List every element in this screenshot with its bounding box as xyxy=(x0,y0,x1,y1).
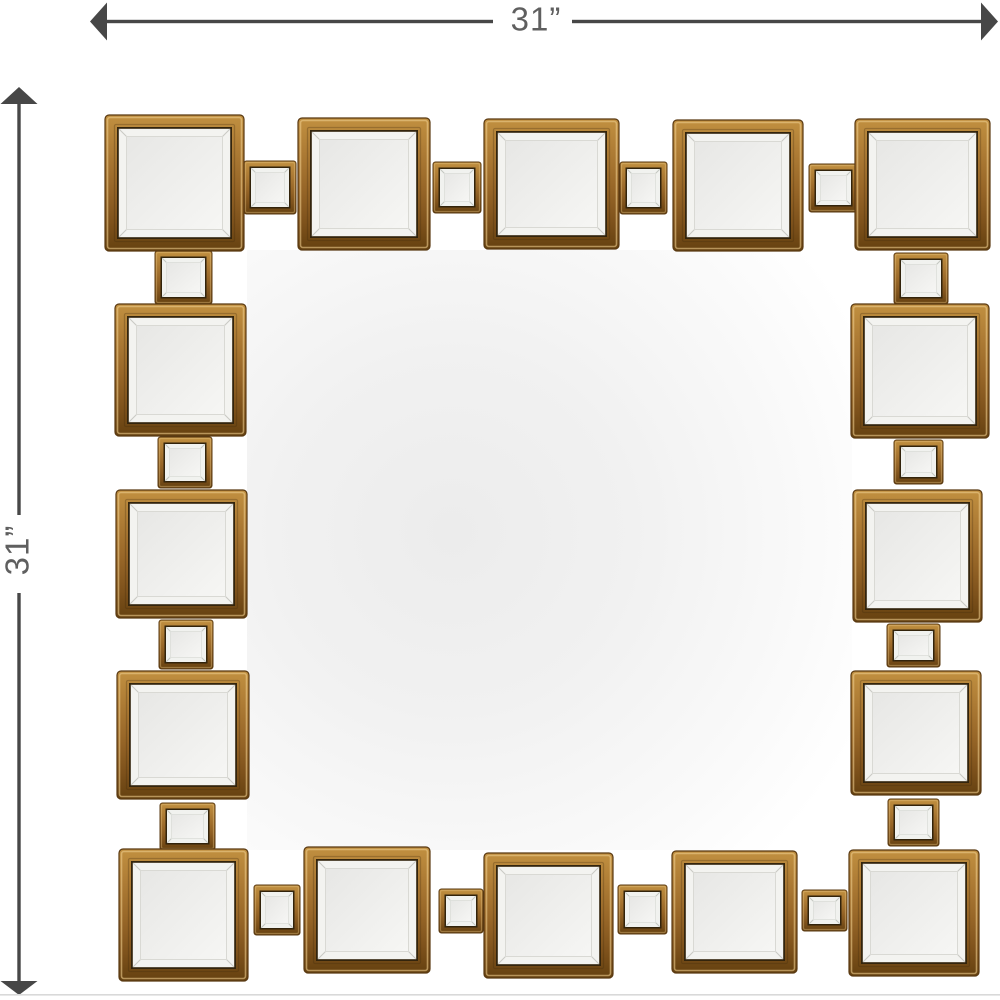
svg-text:31”: 31” xyxy=(0,525,36,576)
svg-text:31”: 31” xyxy=(511,1,562,38)
